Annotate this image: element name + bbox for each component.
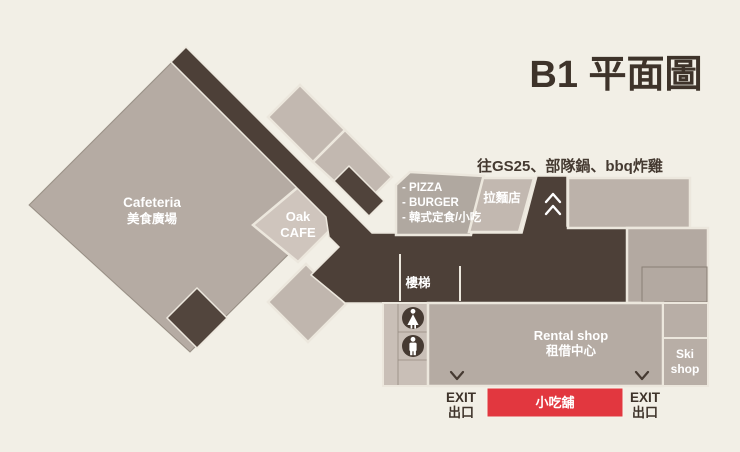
- food-stalls-label-3: - 韓式定食/小吃: [402, 210, 482, 224]
- ramen-label: 拉麵店: [483, 190, 521, 205]
- room-top-right-band: [568, 178, 690, 228]
- ski-label-1: Ski: [676, 347, 694, 361]
- food-stalls-label-1: - PIZZA: [402, 182, 442, 194]
- oak-cafe-label-2: CAFE: [280, 225, 316, 240]
- oak-cafe-label-1: Oak: [286, 209, 311, 224]
- exit-right: EXIT 出口: [630, 390, 661, 420]
- food-stalls-label-2: - BURGER: [402, 197, 460, 209]
- floor-plan: B1 平面圖 往GS25、部隊鍋、bbq炸雞 Cafeteria 美食廣場 Oa…: [0, 0, 740, 452]
- exit-left-label-zh: 出口: [448, 405, 474, 420]
- room-right-block: [627, 228, 708, 303]
- floor-plan-page: B1 平面圖 往GS25、部隊鍋、bbq炸雞 Cafeteria 美食廣場 Oa…: [0, 0, 740, 452]
- direction-note: 往GS25、部隊鍋、bbq炸雞: [477, 157, 663, 175]
- rental-label-en: Rental shop: [534, 328, 608, 343]
- rental-label-zh: 租借中心: [546, 343, 597, 358]
- exit-left-label-en: EXIT: [446, 390, 477, 405]
- cafeteria-label-en: Cafeteria: [123, 195, 181, 210]
- exit-right-label-zh: 出口: [632, 405, 658, 420]
- room-ski-upper-cell: [663, 303, 708, 338]
- man-restroom-icon: [402, 335, 424, 357]
- exit-left: EXIT 出口: [446, 390, 477, 420]
- snack-bar-label: 小吃舖: [535, 395, 574, 410]
- cafeteria-label-zh: 美食廣場: [127, 211, 178, 226]
- stairs-label: 樓梯: [405, 275, 431, 290]
- ski-label-2: shop: [671, 362, 700, 376]
- page-title: B1 平面圖: [529, 54, 702, 96]
- woman-restroom-icon: [402, 307, 424, 329]
- exit-right-label-en: EXIT: [630, 390, 661, 405]
